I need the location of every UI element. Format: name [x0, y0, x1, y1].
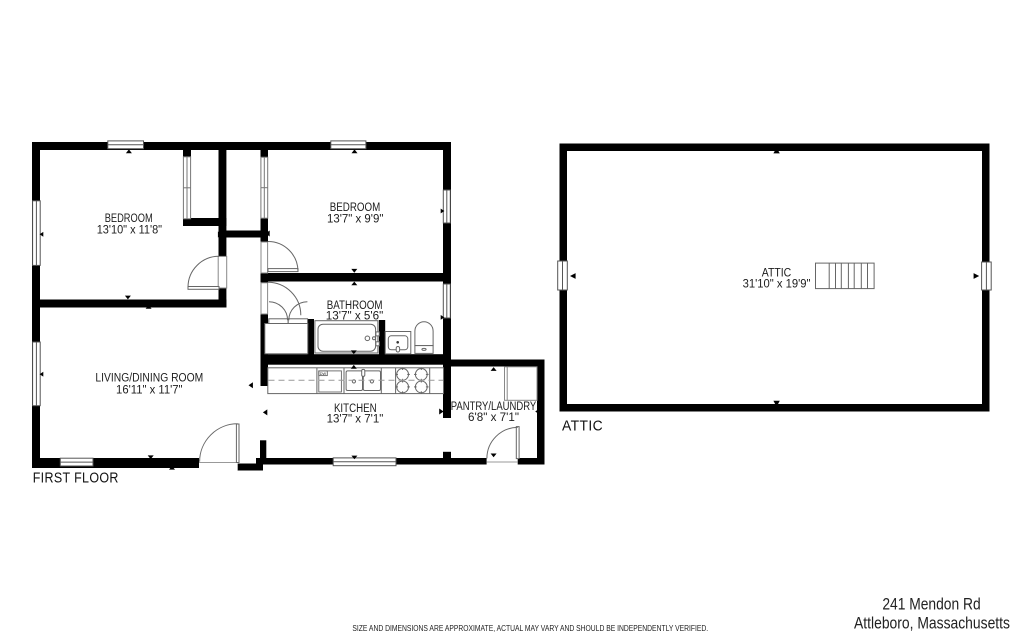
- svg-text:BEDROOM: BEDROOM: [105, 213, 153, 225]
- svg-text:6'8" x 7'1": 6'8" x 7'1": [468, 412, 519, 424]
- svg-text:13'7" x 7'1": 13'7" x 7'1": [327, 414, 384, 426]
- svg-text:SIZE AND DIMENSIONS ARE APPROX: SIZE AND DIMENSIONS ARE APPROXIMATE, ACT…: [352, 624, 708, 633]
- svg-text:LIVING/DINING ROOM: LIVING/DINING ROOM: [95, 372, 203, 384]
- svg-text:BEDROOM: BEDROOM: [330, 202, 381, 214]
- svg-text:241 Mendon Rd: 241 Mendon Rd: [882, 596, 980, 614]
- svg-text:13'7" x 9'9": 13'7" x 9'9": [327, 213, 383, 225]
- svg-text:DW: DW: [320, 372, 327, 376]
- svg-text:13'10" x 11'8": 13'10" x 11'8": [97, 225, 162, 237]
- svg-text:FIRST FLOOR: FIRST FLOOR: [33, 470, 119, 486]
- svg-text:Attleboro, Massachusetts: Attleboro, Massachusetts: [854, 615, 1010, 633]
- svg-text:ATTIC: ATTIC: [562, 419, 603, 435]
- svg-text:13'7" x 5'6": 13'7" x 5'6": [326, 310, 384, 322]
- svg-text:31'10" x 19'9": 31'10" x 19'9": [743, 279, 811, 291]
- svg-text:16'11" x 11'7": 16'11" x 11'7": [116, 384, 183, 396]
